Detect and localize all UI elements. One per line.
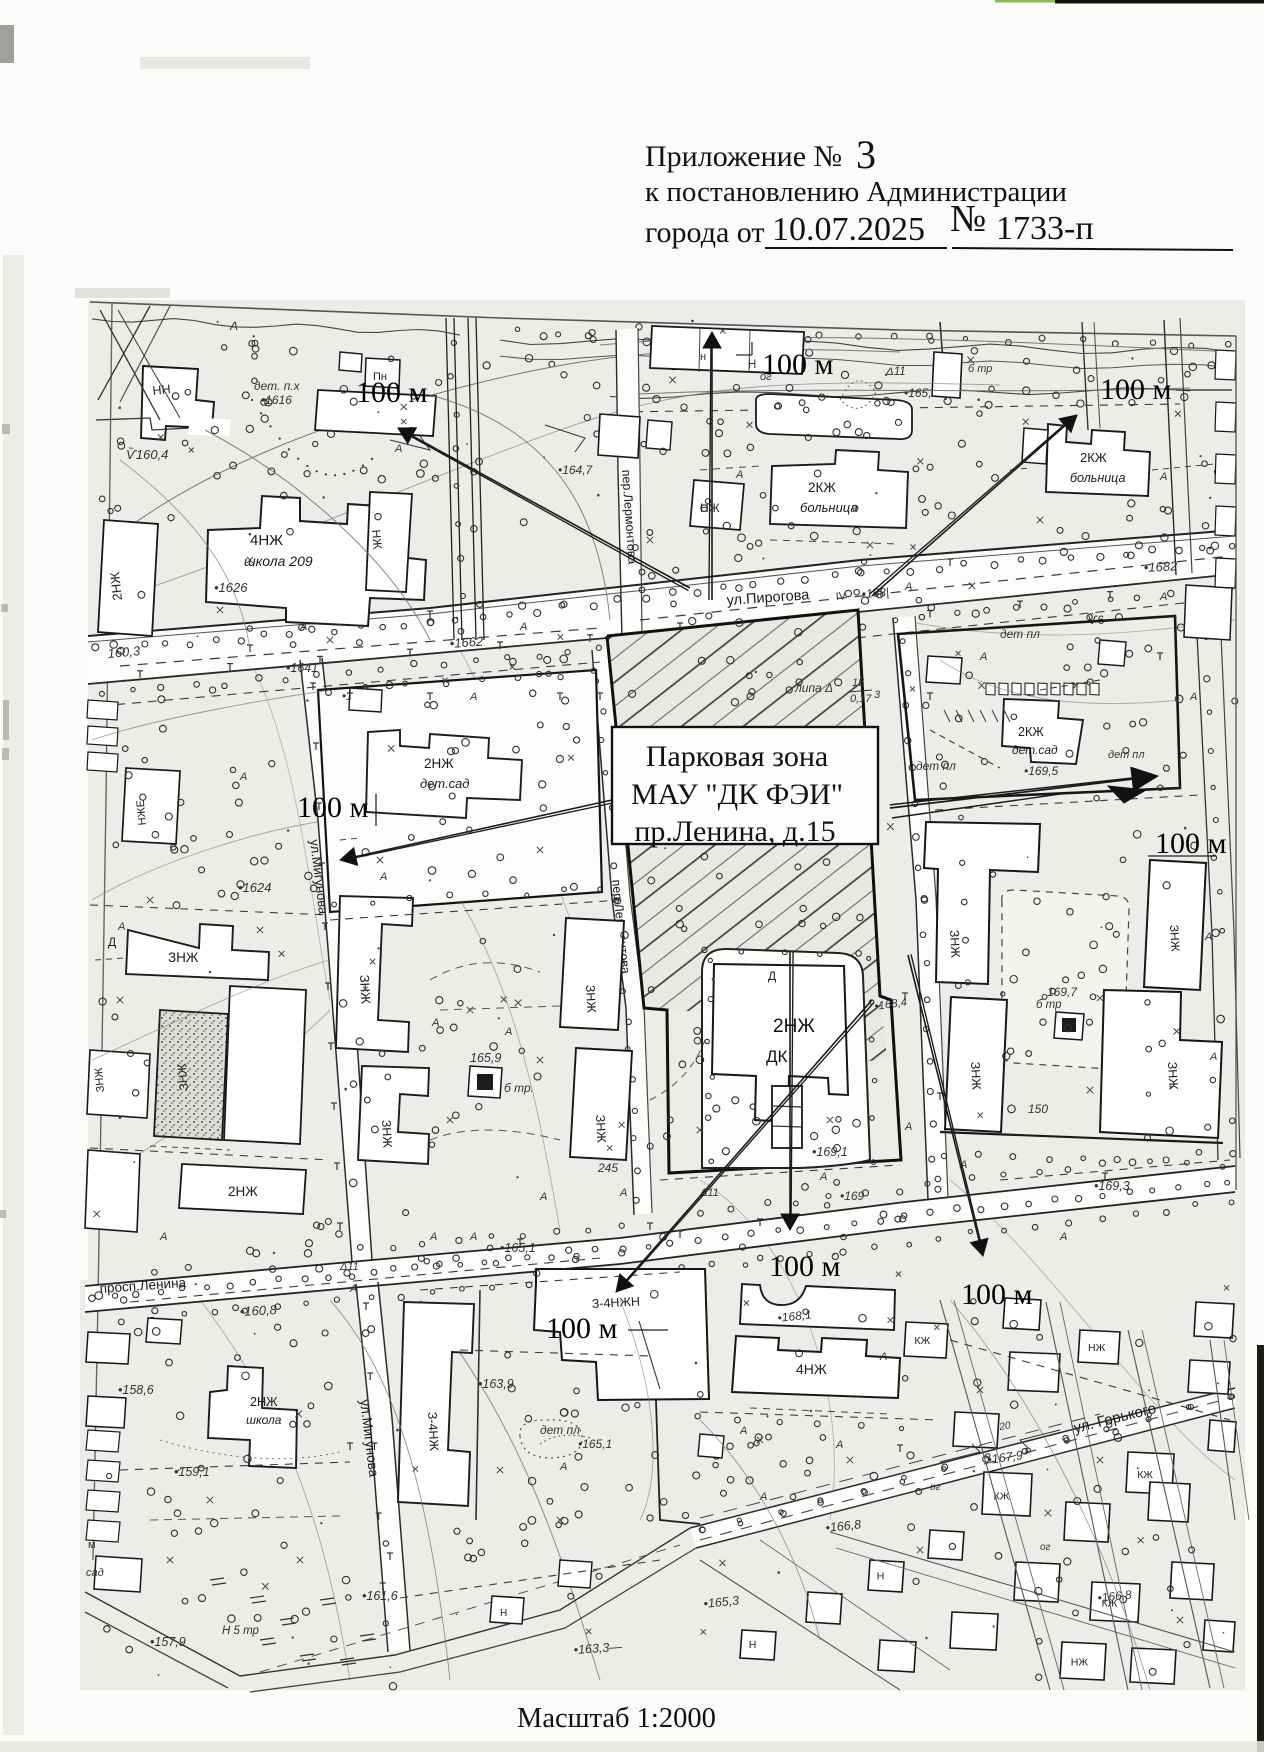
svg-text:А: А xyxy=(904,1121,912,1133)
svg-text:А: А xyxy=(539,1191,547,1203)
svg-text:Н 5 тр: Н 5 тр xyxy=(222,1625,260,1637)
svg-text:2НЖ: 2НЖ xyxy=(228,1184,258,1199)
svg-text:А: А xyxy=(239,771,247,783)
svg-text:б тр: б тр xyxy=(1036,999,1062,1011)
svg-text:169,7: 169,7 xyxy=(1047,985,1078,999)
svg-text:А: А xyxy=(1059,1231,1067,1243)
svg-text:ог: ог xyxy=(930,1482,941,1493)
svg-text:МАУ "ДК ФЭИ": МАУ "ДК ФЭИ" xyxy=(631,778,843,811)
svg-text:больница: больница xyxy=(800,500,858,515)
svg-text:2КЖ: 2КЖ xyxy=(1080,450,1107,465)
svg-text:100 м: 100 м xyxy=(762,348,834,381)
svg-text:школа: школа xyxy=(246,1413,282,1427)
svg-text:ЗНЖ: ЗНЖ xyxy=(175,1063,191,1091)
svg-text:•158,6: •158,6 xyxy=(118,1383,154,1397)
svg-text:школа 209: школа 209 xyxy=(244,553,313,569)
svg-text:165,9: 165,9 xyxy=(470,1051,501,1065)
svg-text:А: А xyxy=(394,443,402,455)
svg-text:100 м: 100 м xyxy=(961,1278,1033,1311)
svg-text:ЗНЖ: ЗНЖ xyxy=(93,1067,107,1093)
svg-text:2КЖ: 2КЖ xyxy=(808,480,836,495)
svg-text:ЗНЖ: ЗНЖ xyxy=(1167,924,1182,952)
svg-text:ЗНЖ: ЗНЖ xyxy=(593,1114,608,1143)
svg-text:160,3: 160,3 xyxy=(107,643,141,661)
svg-text:НН: НН xyxy=(152,382,171,398)
svg-text:Парковая зона: Парковая зона xyxy=(646,740,828,773)
svg-text:ЗНЖ: ЗНЖ xyxy=(168,950,199,965)
svg-text:1733-п: 1733-п xyxy=(996,210,1094,247)
svg-text:100 м: 100 м xyxy=(356,376,428,409)
svg-text:ЗНЖ: ЗНЖ xyxy=(968,1061,983,1090)
svg-text:больница: больница xyxy=(1070,471,1125,485)
svg-text:А: А xyxy=(349,1283,357,1295)
svg-text:•169,5: •169,5 xyxy=(1024,764,1059,778)
svg-text:Приложение №: Приложение № xyxy=(645,140,842,173)
svg-text:А: А xyxy=(117,921,125,933)
svg-text:НЖ: НЖ xyxy=(1071,1656,1089,1668)
svg-text:2НЖ: 2НЖ xyxy=(424,756,454,771)
svg-text:А: А xyxy=(469,691,477,703)
svg-text:А: А xyxy=(735,469,743,481)
svg-text:А: А xyxy=(379,871,387,883)
svg-text:Δ11: Δ11 xyxy=(885,366,906,378)
svg-text:•1662: •1662 xyxy=(449,634,484,651)
svg-text:245: 245 xyxy=(597,1161,618,1175)
svg-text:НЖ: НЖ xyxy=(369,529,385,550)
svg-text:150: 150 xyxy=(1028,1102,1048,1116)
svg-text:А: А xyxy=(431,1017,439,1029)
svg-text:Н: Н xyxy=(877,1571,885,1583)
svg-text:3: 3 xyxy=(874,689,881,701)
svg-text:0,17: 0,17 xyxy=(850,693,872,705)
svg-text:З-4НЖН: З-4НЖН xyxy=(591,1294,640,1311)
svg-text:КЖ: КЖ xyxy=(1137,1469,1153,1481)
svg-text:З-4НЖ: З-4НЖ xyxy=(425,1411,441,1451)
svg-text:4НЖ: 4НЖ xyxy=(796,1361,827,1377)
svg-text:№: № xyxy=(950,198,986,240)
svg-text:б тр.: б тр. xyxy=(504,1081,534,1095)
svg-text:А: А xyxy=(879,1351,887,1363)
svg-text:А: А xyxy=(1189,691,1197,703)
svg-text:А: А xyxy=(504,1026,512,1038)
svg-text:Ѷ160,4: Ѷ160,4 xyxy=(126,447,168,462)
svg-text:10.07.2025: 10.07.2025 xyxy=(772,211,925,248)
svg-text:•1641: •1641 xyxy=(286,661,318,675)
svg-text:Д: Д xyxy=(768,969,776,983)
svg-text:100 м: 100 м xyxy=(1155,827,1227,860)
svg-text:А: А xyxy=(1209,1051,1217,1063)
svg-text:ЗНЖ: ЗНЖ xyxy=(583,984,598,1013)
svg-text:А: А xyxy=(819,1171,827,1183)
svg-text:дет.сад: дет.сад xyxy=(1012,743,1058,757)
svg-text:•169: •169 xyxy=(840,1189,865,1203)
svg-text:дет.сад: дет.сад xyxy=(420,776,469,791)
svg-text:Д: Д xyxy=(108,935,116,949)
svg-text:•169,1: •169,1 xyxy=(812,1145,848,1159)
svg-text:2НЖ: 2НЖ xyxy=(250,1395,278,1409)
svg-text:липа Δ: липа Δ xyxy=(794,681,833,695)
svg-text:н: н xyxy=(700,351,706,363)
svg-text:3: 3 xyxy=(856,132,876,177)
svg-text:4НЖ: 4НЖ xyxy=(250,532,283,549)
svg-text:дет пл: дет пл xyxy=(1108,749,1145,761)
svg-text:А: А xyxy=(519,621,527,633)
svg-text:•165,1: •165,1 xyxy=(500,1241,536,1255)
svg-text:•164,7: •164,7 xyxy=(558,463,594,477)
svg-text:•157,9: •157,9 xyxy=(150,1635,186,1649)
svg-text:А: А xyxy=(979,651,987,663)
svg-text:2КЖ: 2КЖ xyxy=(1018,725,1044,739)
svg-text:к постановлению Администрации: к постановлению Администрации xyxy=(645,176,1067,208)
svg-text:ЗНЖ: ЗНЖ xyxy=(947,929,962,958)
svg-text:Н: Н xyxy=(748,359,756,371)
svg-text:100 м: 100 м xyxy=(769,1250,841,1283)
svg-text:города от: города от xyxy=(645,216,765,249)
svg-text:А: А xyxy=(299,621,307,633)
svg-text:А: А xyxy=(1204,931,1212,943)
svg-text:•1682: •1682 xyxy=(1143,558,1178,575)
svg-text:дет пл: дет пл xyxy=(916,759,956,773)
svg-text:б тр: б тр xyxy=(968,363,992,375)
svg-text:А: А xyxy=(619,1187,627,1199)
svg-text:сад: сад xyxy=(86,1567,104,1579)
svg-text:А: А xyxy=(835,1439,843,1451)
svg-text:пр.Ленина, д.15: пр.Ленина, д.15 xyxy=(634,815,835,848)
svg-text:•169,3: •169,3 xyxy=(1094,1179,1130,1193)
svg-text:А: А xyxy=(1159,591,1167,603)
svg-text:•165,1: •165,1 xyxy=(578,1437,612,1451)
svg-text:2НЖ: 2НЖ xyxy=(773,1016,815,1037)
svg-text:А: А xyxy=(229,319,238,333)
svg-text:•160,8: •160,8 xyxy=(239,1302,278,1319)
svg-text:А: А xyxy=(469,1231,477,1243)
svg-text:А: А xyxy=(739,1425,747,1437)
svg-text:ЗНЖ: ЗНЖ xyxy=(1165,1061,1180,1090)
svg-text:дет. п.х: дет. п.х xyxy=(254,379,301,393)
svg-text:•161,6: •161,6 xyxy=(362,1589,398,1603)
svg-text:А: А xyxy=(559,1461,567,1473)
svg-text:А: А xyxy=(904,581,912,593)
svg-text:А: А xyxy=(429,1231,437,1243)
svg-text:НЖЕ: НЖЕ xyxy=(135,799,149,825)
svg-text:100 м: 100 м xyxy=(297,791,369,824)
svg-text:А: А xyxy=(1159,471,1167,483)
svg-text:ог: ог xyxy=(1040,1542,1051,1553)
svg-text:ЗНЖ: ЗНЖ xyxy=(379,1119,394,1148)
svg-text:дет пл: дет пл xyxy=(1000,627,1040,641)
svg-text:2НЖ: 2НЖ xyxy=(107,571,125,601)
svg-text:Δ11: Δ11 xyxy=(339,1261,359,1273)
svg-text:100 м: 100 м xyxy=(546,1312,618,1345)
svg-text:КЖ: КЖ xyxy=(914,1335,930,1347)
svg-text:НЖ: НЖ xyxy=(1088,1342,1106,1354)
svg-text:100 м: 100 м xyxy=(1100,373,1172,406)
svg-text:15: 15 xyxy=(852,677,865,689)
svg-text:А: А xyxy=(159,1231,167,1243)
svg-text:Масштаб 1:2000: Масштаб 1:2000 xyxy=(517,1703,716,1734)
svg-text:Н: Н xyxy=(749,1639,757,1651)
svg-text:•165,: •165, xyxy=(904,386,932,400)
svg-text:20: 20 xyxy=(998,1420,1012,1433)
svg-text:Н: Н xyxy=(500,1608,507,1619)
svg-text:ДК: ДК xyxy=(766,1047,788,1066)
svg-text:•1626: •1626 xyxy=(214,580,248,595)
